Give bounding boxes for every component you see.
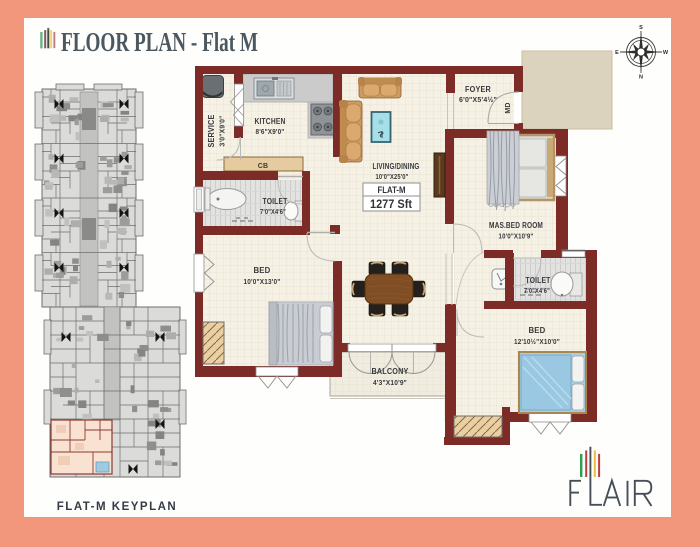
svg-text:4'3"X10'9": 4'3"X10'9": [373, 380, 407, 387]
svg-text:BALCONY: BALCONY: [372, 367, 409, 376]
svg-text:CB: CB: [258, 163, 269, 170]
svg-text:10'0"X10'9": 10'0"X10'9": [499, 234, 534, 241]
svg-text:TOILET: TOILET: [263, 197, 288, 206]
svg-text:MD: MD: [505, 102, 512, 113]
svg-text:W: W: [663, 50, 669, 56]
svg-text:FLAT-M: FLAT-M: [378, 185, 406, 195]
svg-text:3'0"X9'0": 3'0"X9'0": [220, 116, 227, 147]
svg-text:FLAT-M KEYPLAN: FLAT-M KEYPLAN: [57, 501, 177, 513]
svg-text:10'0"X13'0": 10'0"X13'0": [244, 279, 281, 286]
svg-text:6'0"X5'4½": 6'0"X5'4½": [459, 96, 497, 104]
svg-text:7'0"X4'6": 7'0"X4'6": [260, 209, 286, 216]
svg-text:MAS.BED ROOM: MAS.BED ROOM: [489, 221, 543, 230]
svg-text:FOYER: FOYER: [465, 85, 491, 94]
svg-text:FLOOR PLAN - Flat M: FLOOR PLAN - Flat M: [61, 27, 258, 57]
svg-text:TOILET: TOILET: [526, 276, 551, 285]
svg-text:E: E: [615, 50, 619, 56]
svg-text:12'10½"X10'0": 12'10½"X10'0": [514, 338, 560, 346]
svg-text:KITCHEN: KITCHEN: [255, 117, 286, 126]
svg-text:LIVING/DINING: LIVING/DINING: [373, 162, 420, 171]
svg-text:BED: BED: [254, 266, 271, 275]
svg-text:10'0"X25'0": 10'0"X25'0": [376, 174, 409, 181]
svg-text:7'0"X4'6": 7'0"X4'6": [524, 288, 550, 295]
svg-text:SERVICE: SERVICE: [207, 114, 216, 147]
svg-text:8'6"X9'0": 8'6"X9'0": [256, 129, 285, 136]
svg-text:1277 Sft: 1277 Sft: [370, 197, 412, 211]
svg-text:S: S: [639, 25, 643, 31]
svg-text:BED: BED: [529, 326, 546, 335]
svg-text:N: N: [639, 75, 643, 81]
